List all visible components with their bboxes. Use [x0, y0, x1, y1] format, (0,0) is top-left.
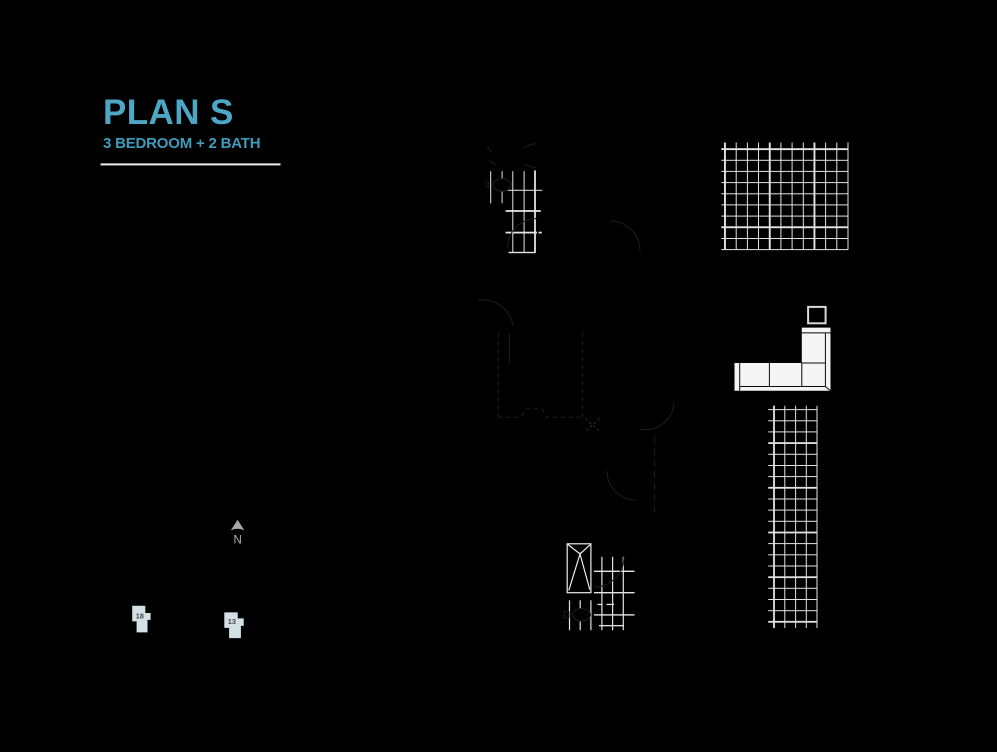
svg-text:PLAN S: PLAN S	[103, 93, 234, 132]
svg-text:3 BEDROOM + 2 BATH: 3 BEDROOM + 2 BATH	[103, 135, 260, 152]
svg-text:18: 18	[136, 612, 144, 621]
svg-text:13: 13	[228, 617, 236, 626]
svg-text:N: N	[234, 535, 242, 547]
